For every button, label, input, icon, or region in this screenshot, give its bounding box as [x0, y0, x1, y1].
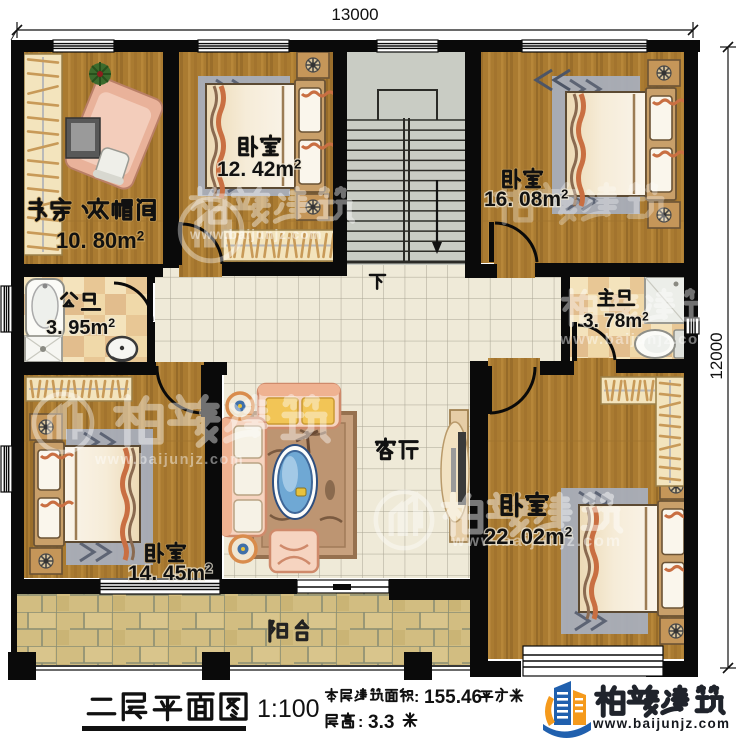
svg-text:1:100: 1:100 [257, 695, 320, 723]
svg-text:13000: 13000 [331, 5, 378, 24]
svg-text::: : [414, 689, 419, 706]
svg-text:www.baijunjz.com: www.baijunjz.com [94, 452, 244, 468]
svg-text:14. 45m2: 14. 45m2 [128, 561, 212, 585]
svg-text:16. 08m2: 16. 08m2 [484, 187, 568, 211]
svg-text:12000: 12000 [707, 332, 726, 379]
svg-text:10. 80m2: 10. 80m2 [56, 228, 144, 253]
svg-text:3. 78m2: 3. 78m2 [583, 310, 649, 332]
svg-text:22. 02m2: 22. 02m2 [484, 524, 573, 549]
svg-text:www.baijunjz.com: www.baijunjz.com [189, 227, 323, 242]
svg-text:155.46: 155.46 [424, 687, 482, 708]
svg-text:3. 95m2: 3. 95m2 [46, 316, 115, 339]
svg-text:12. 42m2: 12. 42m2 [217, 157, 301, 181]
svg-text:www.baijunjz.com: www.baijunjz.com [592, 716, 730, 731]
svg-text:www.baijunjz.com: www.baijunjz.com [559, 331, 713, 348]
svg-text:3.3: 3.3 [368, 712, 394, 733]
svg-text::: : [358, 714, 363, 731]
